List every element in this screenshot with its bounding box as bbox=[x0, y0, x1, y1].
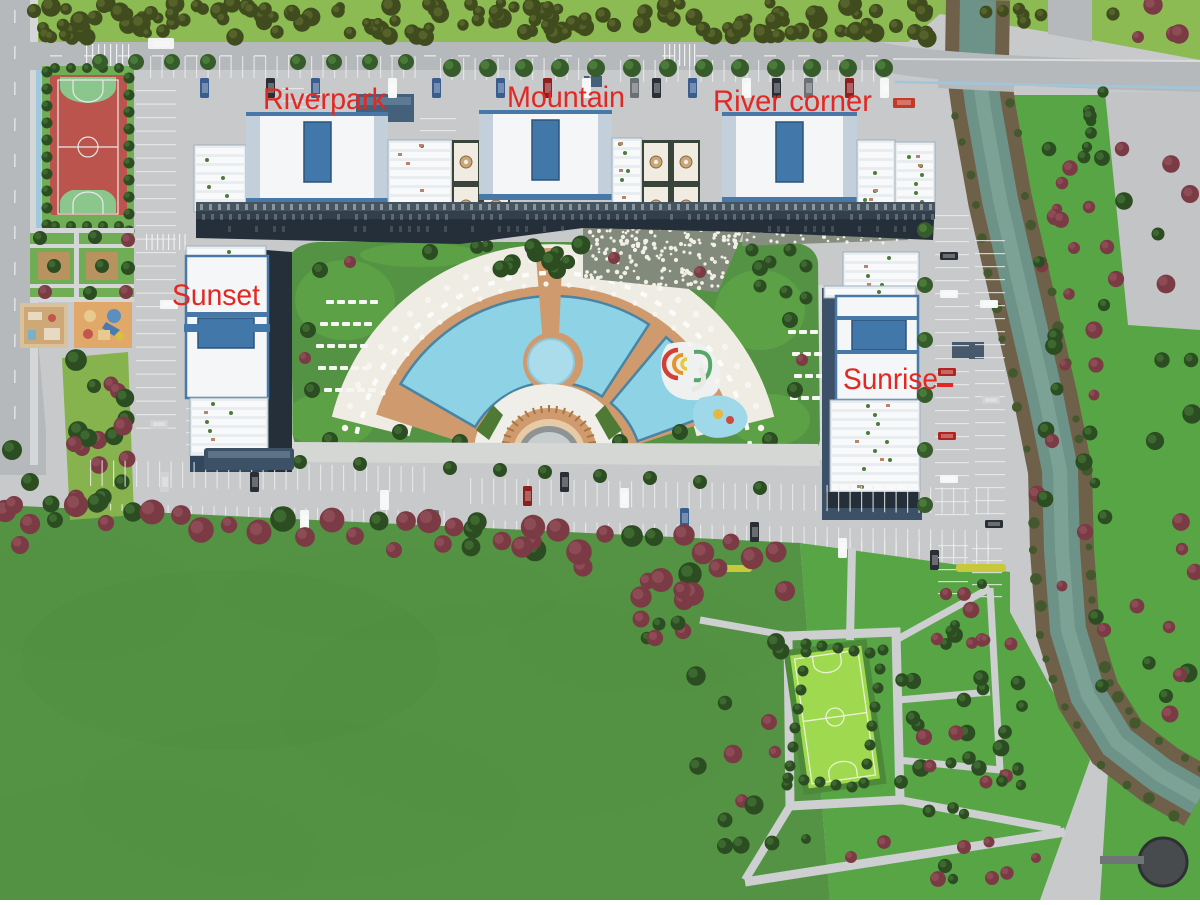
svg-text:Sunset: Sunset bbox=[172, 279, 261, 312]
svg-text:Mountain: Mountain bbox=[507, 81, 625, 114]
svg-text:Sunrise: Sunrise bbox=[843, 363, 938, 396]
svg-text:River corner: River corner bbox=[713, 85, 872, 118]
svg-text:Riverpark: Riverpark bbox=[263, 83, 387, 116]
